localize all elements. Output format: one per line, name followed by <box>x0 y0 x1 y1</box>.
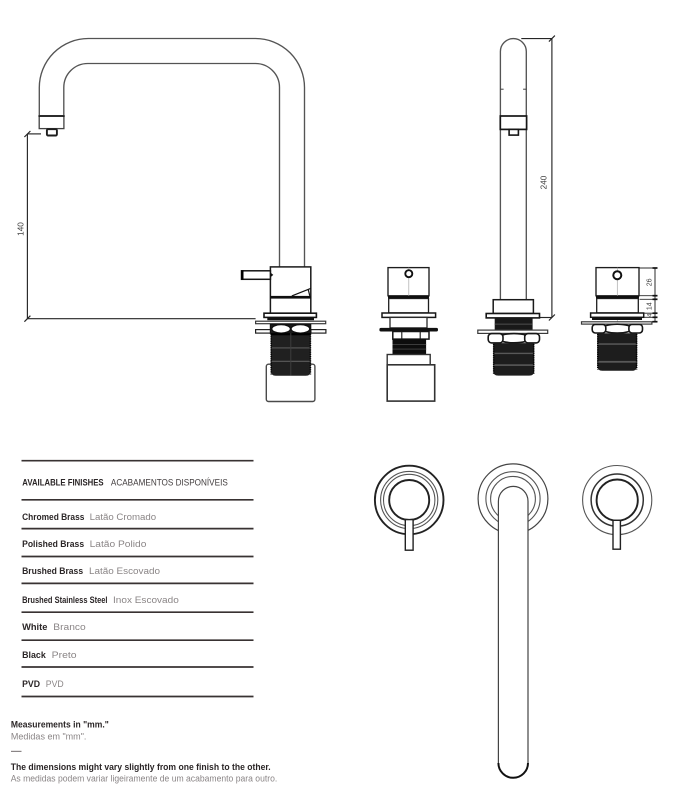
svg-text:As medidas podem variar ligeir: As medidas podem variar ligeiramente de … <box>11 774 278 784</box>
svg-text:Latão Escovado: Latão Escovado <box>89 566 160 576</box>
svg-text:Measurements in "mm.": Measurements in "mm." <box>11 720 109 730</box>
svg-text:Brushed Brass: Brushed Brass <box>22 566 83 576</box>
svg-text:Medidas em "mm".: Medidas em "mm". <box>11 731 87 741</box>
svg-text:ACABAMENTOS DISPONÍVEIS: ACABAMENTOS DISPONÍVEIS <box>111 478 228 488</box>
svg-text:AVAILABLE FINISHES: AVAILABLE FINISHES <box>22 478 103 488</box>
svg-text:Latão Polido: Latão Polido <box>90 539 147 549</box>
svg-text:Inox Escovado: Inox Escovado <box>113 595 179 605</box>
svg-text:Black: Black <box>22 650 47 660</box>
svg-text:Latão Cromado: Latão Cromado <box>90 512 157 522</box>
svg-text:14: 14 <box>646 302 653 310</box>
svg-text:Brushed Stainless Steel: Brushed Stainless Steel <box>22 595 107 605</box>
svg-text:White: White <box>22 622 47 632</box>
svg-text:26: 26 <box>646 278 653 286</box>
svg-text:240: 240 <box>539 175 548 189</box>
svg-text:PVD: PVD <box>46 679 64 689</box>
svg-text:140: 140 <box>17 222 26 236</box>
svg-text:The dimensions might vary slig: The dimensions might vary slightly from … <box>11 762 271 772</box>
svg-text:Chromed Brass: Chromed Brass <box>22 512 84 522</box>
svg-text:Branco: Branco <box>53 622 85 632</box>
svg-text:Polished Brass: Polished Brass <box>22 539 84 549</box>
svg-text:PVD: PVD <box>22 679 40 689</box>
svg-text:Preto: Preto <box>52 650 77 660</box>
